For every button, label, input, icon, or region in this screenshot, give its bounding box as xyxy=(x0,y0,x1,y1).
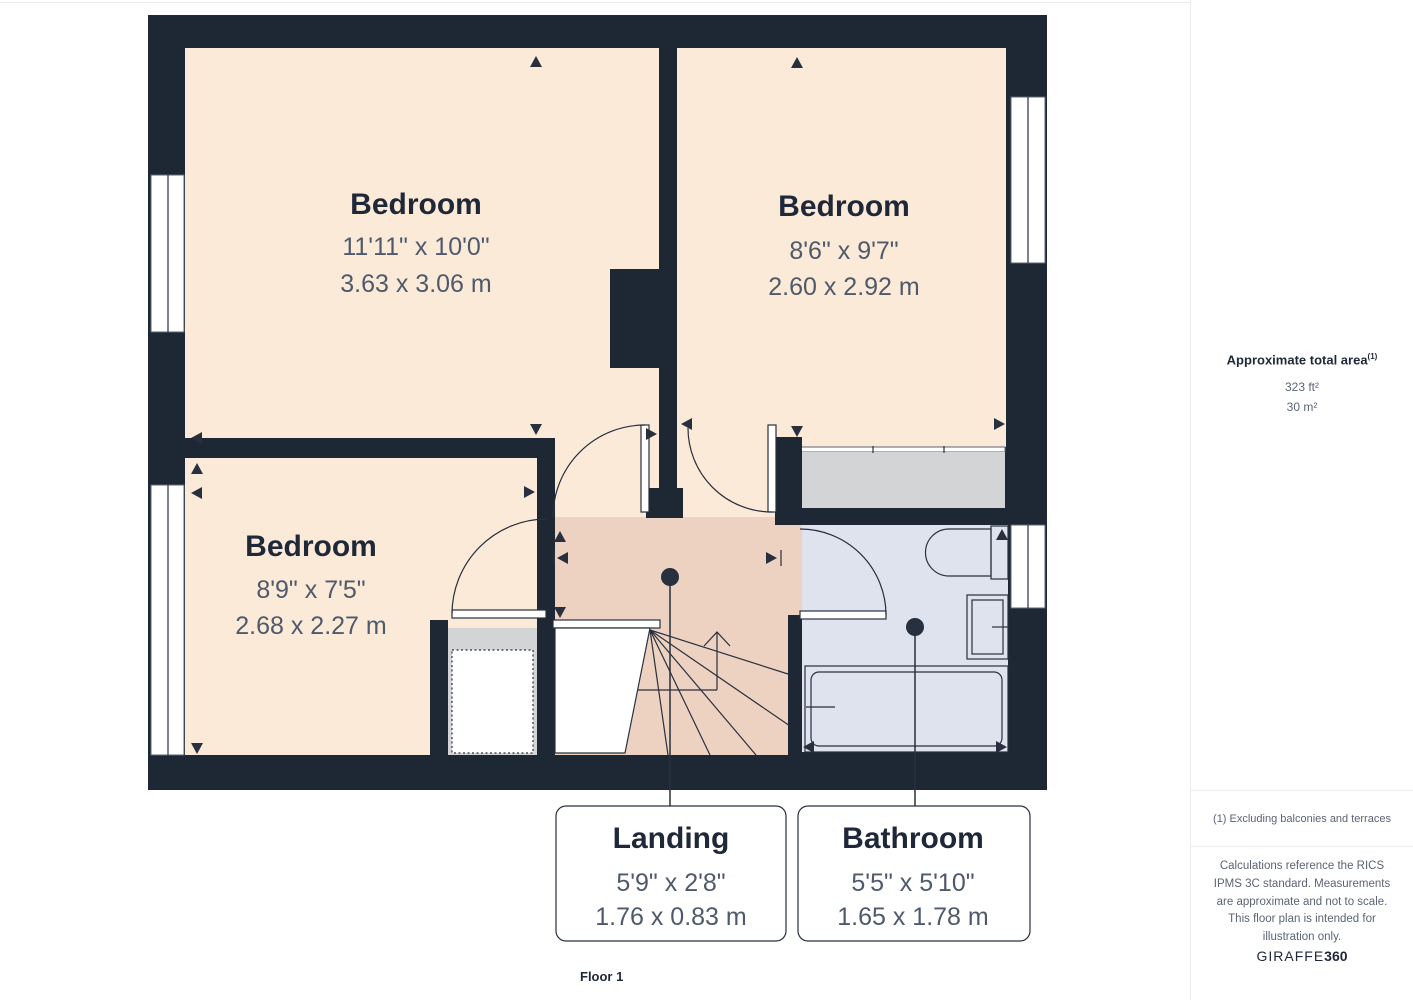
total-area-ft: 323 ft² xyxy=(1191,377,1413,397)
bedroom-2-name: Bedroom xyxy=(778,190,910,223)
landing-name: Landing xyxy=(613,822,730,855)
brand-giraffe: GIRAFFE xyxy=(1256,948,1324,964)
total-area-title: Approximate total area(1) xyxy=(1191,352,1413,367)
total-area-m: 30 m² xyxy=(1191,397,1413,417)
label-callouts: Landing 5'9" x 2'8" 1.76 x 0.83 m Bathro… xyxy=(556,806,1030,941)
bedroom-2-dim-metric: 2.60 x 2.92 m xyxy=(768,273,919,301)
wardrobe xyxy=(800,452,1005,508)
info-sidebar: Approximate total area(1) 323 ft² 30 m² … xyxy=(1190,0,1413,1000)
bedroom-3-name: Bedroom xyxy=(245,530,377,563)
bedroom-3-dim-metric: 2.68 x 2.27 m xyxy=(235,612,386,640)
bathroom-floor xyxy=(802,525,1008,752)
floor-label: Floor 1 xyxy=(580,969,623,984)
bathroom-dim-imperial: 5'5" x 5'10" xyxy=(851,869,974,897)
bedroom-2-dim-imperial: 8'6" x 9'7" xyxy=(789,237,898,265)
bedroom-3-dim-imperial: 8'9" x 7'5" xyxy=(256,576,365,604)
giraffe360-logo: GIRAFFE360 xyxy=(1191,948,1413,964)
bedroom-1-dim-imperial: 11'11" x 10'0" xyxy=(342,233,489,261)
landing-dim-metric: 1.76 x 0.83 m xyxy=(595,903,746,931)
bathroom-name: Bathroom xyxy=(842,822,984,855)
door-leaf-bedroom-3 xyxy=(452,610,546,618)
wardrobe-front xyxy=(800,447,1005,452)
total-area-block: Approximate total area(1) 323 ft² 30 m² xyxy=(1191,352,1413,417)
door-leaf-bedroom-2 xyxy=(768,425,776,512)
disclaimer-block: Calculations reference the RICS IPMS 3C … xyxy=(1191,858,1413,947)
bedroom-1-dim-metric: 3.63 x 3.06 m xyxy=(340,270,491,298)
brand-360: 360 xyxy=(1324,948,1347,964)
footnote-text: (1) Excluding balconies and terraces xyxy=(1213,813,1391,825)
page: Bedroom 11'11" x 10'0" 3.63 x 3.06 m Bed… xyxy=(0,0,1413,1000)
total-area-title-text: Approximate total area xyxy=(1227,352,1368,367)
bedroom-1-name: Bedroom xyxy=(350,188,482,221)
disclaimer-text: Calculations reference the RICS IPMS 3C … xyxy=(1207,858,1397,947)
door-leaf-bathroom xyxy=(800,611,886,619)
bathroom-dim-metric: 1.65 x 1.78 m xyxy=(837,903,988,931)
chimney-breast xyxy=(610,269,659,368)
footnote-marker: (1) xyxy=(1368,352,1378,361)
cupboard-dashed-unit xyxy=(452,650,533,753)
landing-dim-imperial: 5'9" x 2'8" xyxy=(616,869,725,897)
footnote-block: (1) Excluding balconies and terraces xyxy=(1191,790,1413,847)
floor-plan: Bedroom 11'11" x 10'0" 3.63 x 3.06 m Bed… xyxy=(0,0,1190,1000)
bathroom-doorway-floor xyxy=(788,517,802,615)
